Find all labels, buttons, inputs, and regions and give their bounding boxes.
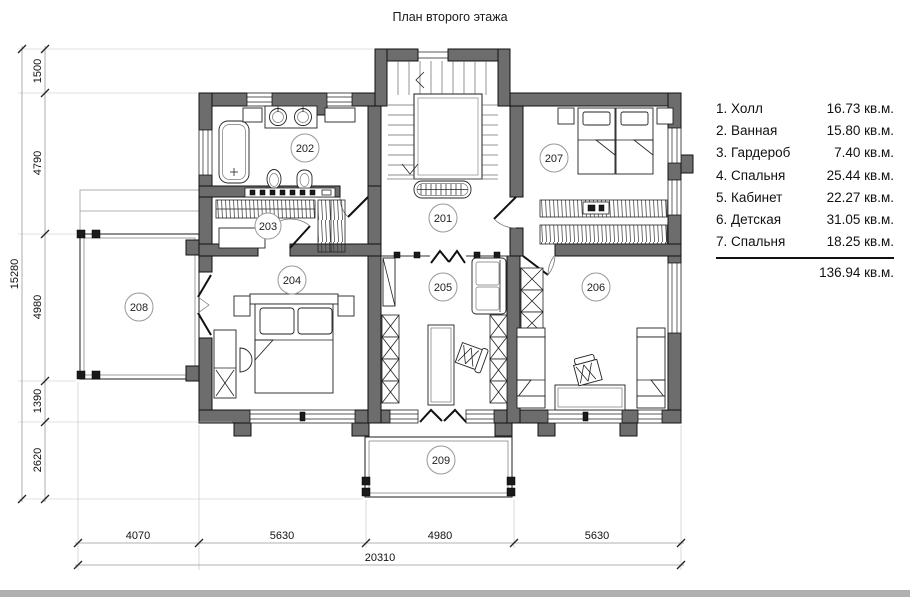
legend-row: 4. Спальня 25.44 кв.м.: [716, 164, 894, 186]
legend-room-area: 15.80 кв.м.: [827, 123, 894, 138]
bookshelf-right-icon: [490, 315, 507, 403]
dim-bottom-2: 4980: [428, 530, 452, 542]
room-label-205: 205: [434, 282, 452, 294]
legend-total-area: 136.94 кв.м.: [716, 259, 894, 280]
bathtub-icon: [219, 121, 249, 183]
legend-room-area: 31.05 кв.м.: [827, 212, 894, 227]
dim-left-total: 15280: [9, 259, 21, 290]
dim-left-3: 1390: [32, 389, 44, 413]
single-bed-left-icon: [517, 328, 545, 408]
legend-row: 2. Ванная 15.80 кв.м.: [716, 119, 894, 141]
office-chair-icon: [455, 341, 489, 374]
canopy-outline: [80, 190, 199, 234]
legend-room-area: 22.27 кв.м.: [827, 190, 894, 205]
french-door-balcony209: [420, 410, 466, 422]
children-desk-icon: [555, 385, 625, 410]
single-bed-right-icon: [637, 328, 665, 408]
legend-room-name: 3. Гардероб: [716, 145, 790, 160]
legend-room-name: 1. Холл: [716, 101, 763, 116]
dressing-table-icon: [214, 330, 252, 398]
dim-bottom-1: 5630: [270, 530, 294, 542]
floor-plan-page: План второго этажа: [0, 0, 910, 597]
sink-counter-icon: [243, 106, 355, 128]
legend-room-area: 16.73 кв.м.: [827, 101, 894, 116]
footer-bar: [0, 590, 910, 597]
office-desk-icon: [428, 325, 454, 405]
dim-left-4: 2620: [32, 448, 44, 472]
door-hall-bedroom207: [494, 197, 516, 228]
room-label-208: 208: [130, 302, 148, 314]
sofa-icon: [472, 258, 506, 314]
dim-bottom-3: 5630: [585, 530, 609, 542]
legend-room-name: 4. Спальня: [716, 168, 785, 183]
dim-bottom-total: 20310: [365, 552, 396, 564]
legend-room-name: 5. Кабинет: [716, 190, 782, 205]
bathroom-radiator-icon: [245, 188, 335, 197]
room-label-202: 202: [296, 143, 314, 155]
room-label-203: 203: [259, 221, 277, 233]
room-label-204: 204: [283, 275, 301, 287]
room-legend: 1. Холл 16.73 кв.м. 2. Ванная 15.80 кв.м…: [716, 97, 894, 280]
dim-left-2: 4980: [32, 295, 44, 319]
room-label-206: 206: [587, 282, 605, 294]
room-label-207: 207: [545, 153, 563, 165]
legend-room-area: 18.25 кв.м.: [827, 234, 894, 249]
french-door-hall-office: [431, 251, 465, 263]
room-label-201: 201: [434, 213, 452, 225]
legend-room-area: 7.40 кв.м.: [834, 145, 894, 160]
radiator-icon: [414, 181, 471, 198]
children-chair-icon: [572, 353, 602, 385]
legend-row: 3. Гардероб 7.40 кв.м.: [716, 142, 894, 164]
staircase-icon: [387, 61, 498, 179]
french-door-balcony208: [198, 275, 211, 335]
floor-plan-drawing: 1500 4790 4980 1390 2620 15280 4070 563: [0, 0, 910, 597]
room-label-209: 209: [432, 455, 450, 467]
dim-left-1: 4790: [32, 151, 44, 175]
legend-row: 7. Спальня 18.25 кв.м.: [716, 231, 894, 253]
twin-beds-icon: [558, 108, 673, 174]
dim-bottom-0: 4070: [126, 530, 150, 542]
legend-room-name: 7. Спальня: [716, 234, 785, 249]
legend-row: 1. Холл 16.73 кв.м.: [716, 97, 894, 119]
wardrobe-207-icon: [540, 200, 667, 244]
legend-room-name: 6. Детская: [716, 212, 781, 227]
legend-room-name: 2. Ванная: [716, 123, 777, 138]
legend-row: 5. Кабинет 22.27 кв.м.: [716, 186, 894, 208]
shelf-unit-icon: [521, 268, 543, 334]
bookshelf-left-icon: [382, 258, 399, 403]
double-bed-icon: [234, 294, 354, 393]
dim-left-0: 1500: [32, 59, 44, 83]
legend-row: 6. Детская 31.05 кв.м.: [716, 208, 894, 230]
legend-room-area: 25.44 кв.м.: [827, 168, 894, 183]
